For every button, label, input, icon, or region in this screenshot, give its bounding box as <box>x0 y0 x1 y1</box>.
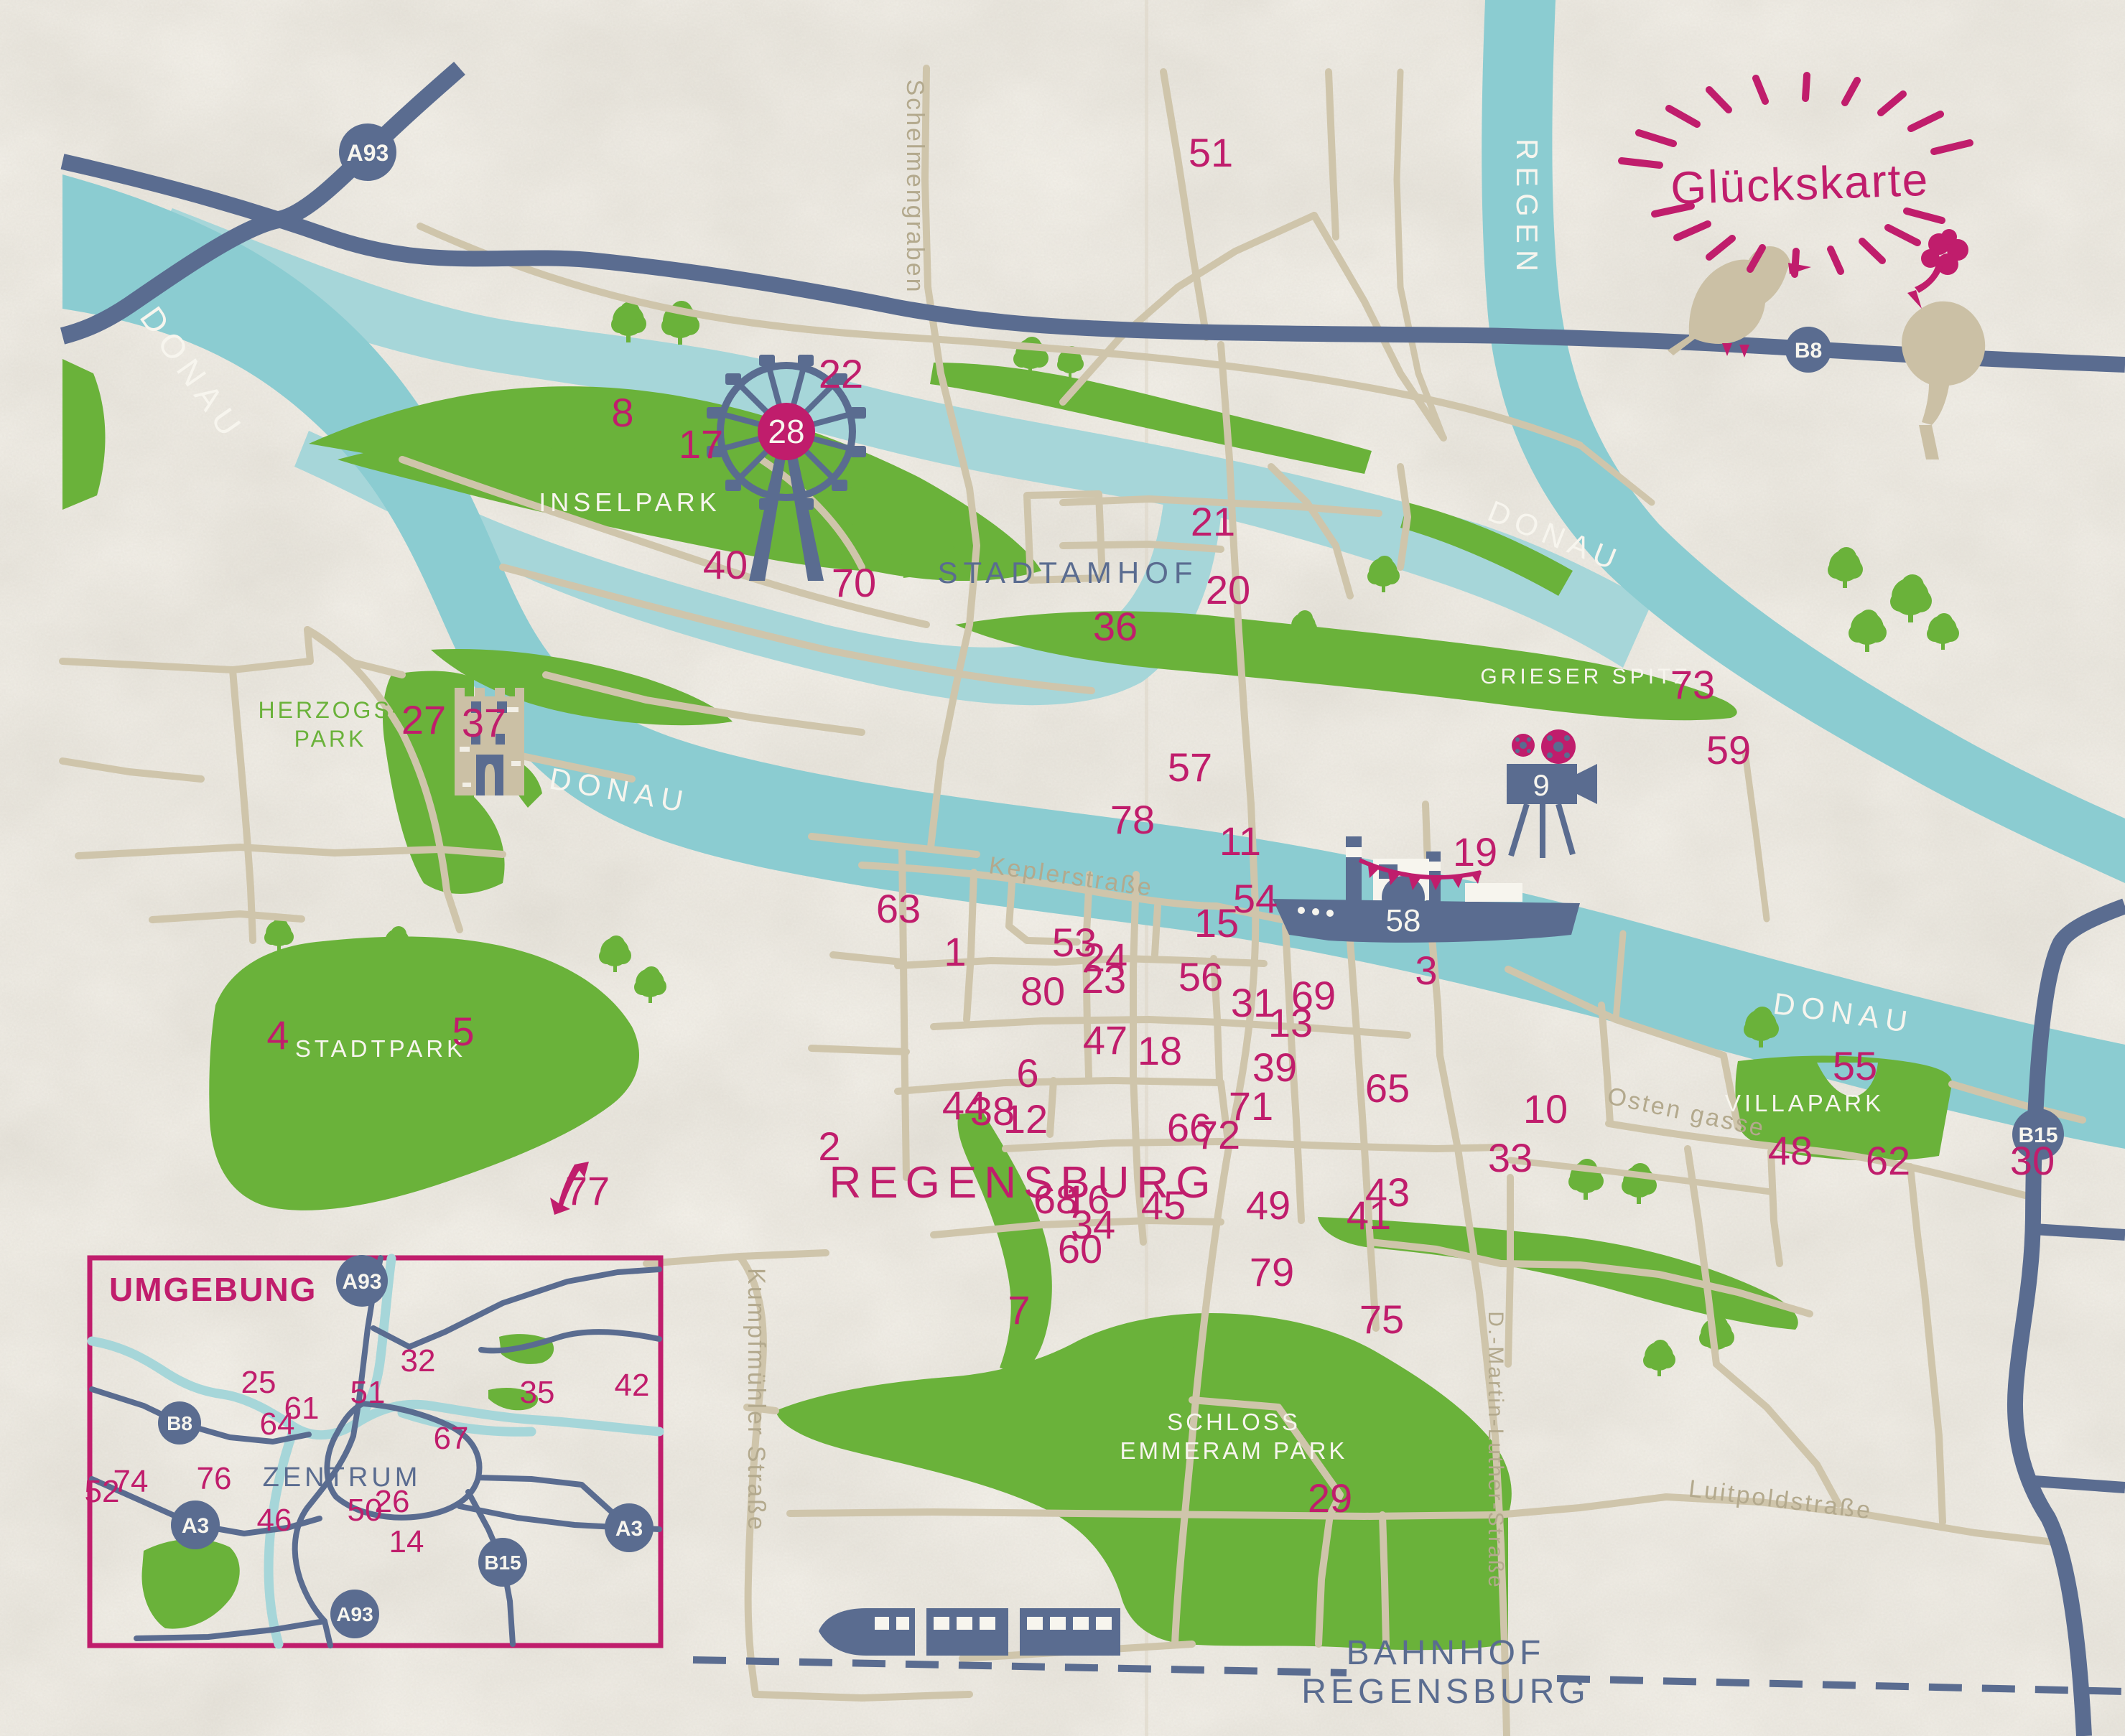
svg-text:A93: A93 <box>342 1270 381 1294</box>
svg-text:28: 28 <box>768 413 804 450</box>
svg-text:19: 19 <box>1453 829 1497 874</box>
svg-text:11: 11 <box>1219 818 1261 864</box>
svg-text:42: 42 <box>615 1368 650 1403</box>
svg-text:B15: B15 <box>484 1551 521 1574</box>
svg-text:8: 8 <box>611 390 633 435</box>
svg-text:STADTPARK: STADTPARK <box>295 1035 466 1062</box>
svg-text:48: 48 <box>1768 1128 1813 1173</box>
svg-text:29: 29 <box>1308 1475 1352 1521</box>
svg-text:4: 4 <box>266 1012 289 1058</box>
svg-text:47: 47 <box>1083 1017 1127 1063</box>
svg-text:40: 40 <box>703 542 748 587</box>
svg-text:51: 51 <box>350 1375 386 1410</box>
svg-text:54: 54 <box>1233 876 1278 921</box>
svg-text:UMGEBUNG: UMGEBUNG <box>109 1271 317 1308</box>
svg-text:PARK: PARK <box>294 726 367 752</box>
svg-text:22: 22 <box>819 351 863 396</box>
svg-text:18: 18 <box>1138 1028 1182 1073</box>
svg-text:VILLAPARK: VILLAPARK <box>1725 1090 1884 1116</box>
svg-text:70: 70 <box>832 560 876 605</box>
svg-text:17: 17 <box>679 421 723 467</box>
svg-text:21: 21 <box>1191 499 1235 544</box>
svg-text:64: 64 <box>260 1406 295 1442</box>
svg-text:78: 78 <box>1110 797 1155 842</box>
svg-text:67: 67 <box>434 1421 469 1456</box>
svg-text:20: 20 <box>1206 567 1250 612</box>
svg-text:25: 25 <box>241 1365 276 1400</box>
svg-text:62: 62 <box>1866 1138 1910 1183</box>
svg-text:37: 37 <box>462 700 506 745</box>
svg-text:77: 77 <box>565 1168 610 1213</box>
svg-text:56: 56 <box>1178 954 1223 999</box>
svg-text:72: 72 <box>1196 1112 1240 1157</box>
svg-text:9: 9 <box>1533 768 1549 802</box>
svg-text:46: 46 <box>257 1503 292 1538</box>
svg-text:15: 15 <box>1194 900 1239 946</box>
svg-text:GRIESER SPITZ: GRIESER SPITZ <box>1480 665 1691 689</box>
svg-text:REGEN: REGEN <box>1510 139 1544 278</box>
svg-text:A93: A93 <box>347 140 389 166</box>
svg-text:Schelmengraben: Schelmengraben <box>901 79 929 294</box>
svg-text:A3: A3 <box>182 1514 209 1538</box>
svg-text:REGENSBURG: REGENSBURG <box>829 1158 1218 1208</box>
svg-text:Glückskarte: Glückskarte <box>1670 154 1930 215</box>
svg-text:55: 55 <box>1833 1043 1877 1088</box>
svg-text:57: 57 <box>1168 745 1212 790</box>
svg-text:76: 76 <box>197 1461 232 1496</box>
svg-text:43: 43 <box>1365 1170 1410 1215</box>
svg-text:30: 30 <box>2010 1138 2055 1183</box>
svg-text:3: 3 <box>1415 948 1437 993</box>
svg-text:REGENSBURG: REGENSBURG <box>1301 1673 1589 1711</box>
svg-text:7: 7 <box>1008 1287 1030 1333</box>
svg-text:35: 35 <box>520 1375 555 1410</box>
svg-text:27: 27 <box>401 697 446 742</box>
svg-text:75: 75 <box>1359 1297 1404 1342</box>
svg-text:32: 32 <box>401 1343 436 1378</box>
svg-text:BAHNHOF: BAHNHOF <box>1347 1634 1545 1672</box>
svg-text:6: 6 <box>1016 1050 1038 1096</box>
svg-text:79: 79 <box>1250 1249 1294 1294</box>
svg-text:Kumpfmühler Straße: Kumpfmühler Straße <box>743 1268 770 1532</box>
svg-text:B8: B8 <box>167 1412 192 1434</box>
svg-text:80: 80 <box>1020 969 1065 1014</box>
svg-text:5: 5 <box>452 1009 474 1054</box>
svg-text:49: 49 <box>1246 1182 1291 1228</box>
svg-text:A3: A3 <box>615 1517 643 1541</box>
svg-text:A93: A93 <box>336 1603 373 1625</box>
svg-text:INSELPARK: INSELPARK <box>539 487 720 517</box>
svg-text:51: 51 <box>1189 130 1233 175</box>
svg-text:HERZOGS-: HERZOGS- <box>259 697 403 723</box>
svg-text:STADTAMHOF: STADTAMHOF <box>937 556 1198 589</box>
svg-text:EMMERAM PARK: EMMERAM PARK <box>1120 1437 1348 1464</box>
svg-text:26: 26 <box>375 1484 410 1519</box>
svg-text:65: 65 <box>1365 1065 1410 1111</box>
svg-text:14: 14 <box>389 1524 424 1559</box>
svg-text:23: 23 <box>1082 956 1126 1002</box>
svg-text:59: 59 <box>1706 727 1751 773</box>
svg-text:12: 12 <box>1003 1096 1048 1142</box>
svg-text:10: 10 <box>1523 1086 1568 1131</box>
svg-text:74: 74 <box>113 1464 149 1499</box>
svg-text:B8: B8 <box>1795 339 1822 363</box>
svg-text:33: 33 <box>1488 1135 1533 1180</box>
svg-text:SCHLOSS: SCHLOSS <box>1167 1409 1301 1435</box>
svg-text:63: 63 <box>876 886 921 931</box>
svg-text:73: 73 <box>1670 662 1715 707</box>
svg-text:60: 60 <box>1058 1226 1102 1271</box>
svg-text:1: 1 <box>944 929 966 974</box>
svg-text:58: 58 <box>1386 903 1421 938</box>
svg-text:D.-Martin-Luther-Straße: D.-Martin-Luther-Straße <box>1484 1311 1507 1589</box>
svg-text:13: 13 <box>1268 1000 1313 1045</box>
svg-text:36: 36 <box>1093 604 1138 649</box>
